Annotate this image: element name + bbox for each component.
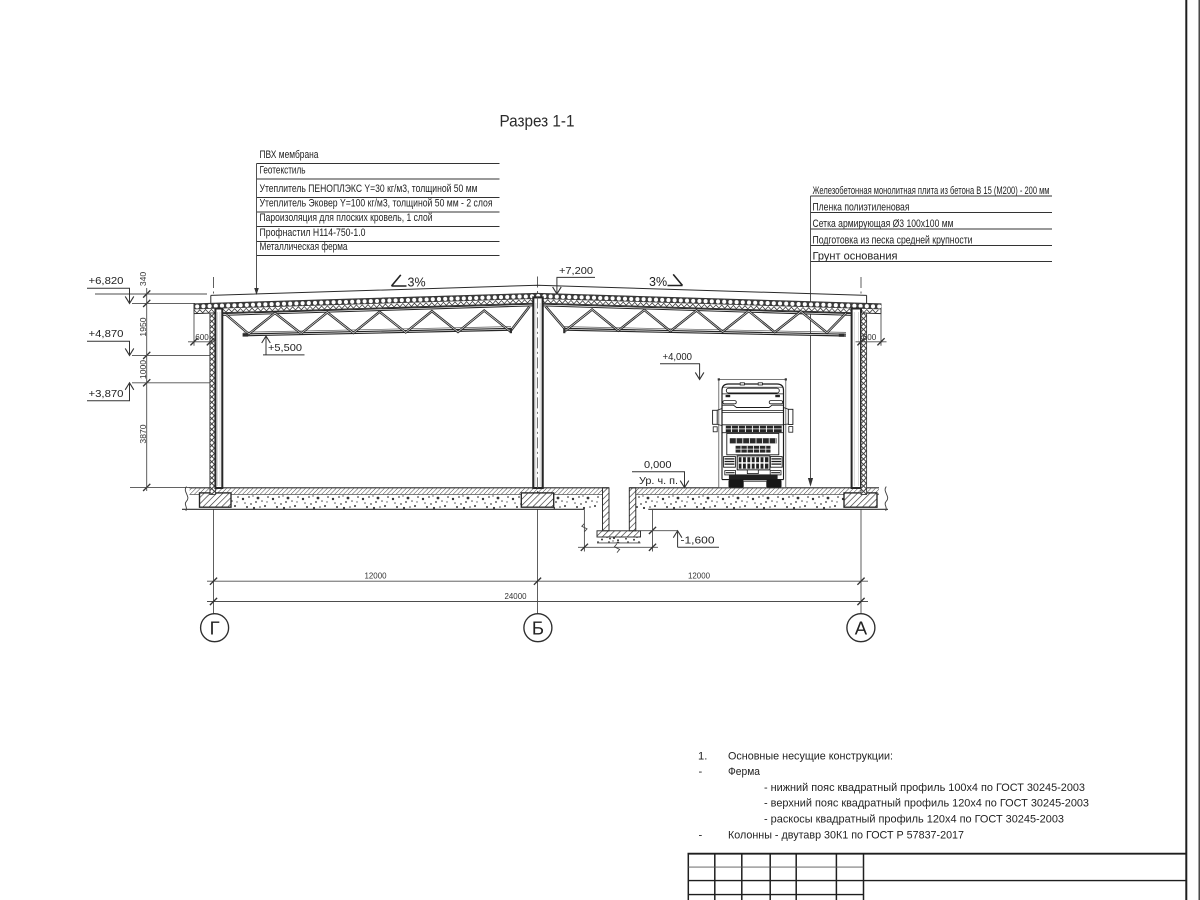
svg-text:+5,500: +5,500	[268, 342, 302, 354]
svg-text:+4,000: +4,000	[663, 351, 693, 363]
svg-text:+3,870: +3,870	[89, 388, 124, 400]
svg-text:Грунт основания: Грунт основания	[813, 250, 898, 262]
svg-text:1000: 1000	[138, 360, 148, 379]
svg-text:Основные несущие конструкции:: Основные несущие конструкции:	[728, 750, 893, 762]
svg-text:Б: Б	[532, 617, 544, 638]
svg-text:-1,600: -1,600	[681, 534, 715, 546]
svg-text:Ферма: Ферма	[728, 766, 761, 778]
svg-text:600: 600	[195, 332, 209, 342]
svg-text:-: -	[699, 829, 703, 841]
svg-text:Колонны - двутавр 30К1 по ГОСТ: Колонны - двутавр 30К1 по ГОСТ Р 57837-2…	[728, 829, 964, 841]
svg-text:1950: 1950	[138, 317, 148, 336]
svg-text:Ур. ч. п.: Ур. ч. п.	[639, 475, 678, 487]
svg-text:12000: 12000	[688, 570, 710, 580]
svg-text:Утеплитель ПЕНОПЛЭКС Y=30 кг/м: Утеплитель ПЕНОПЛЭКС Y=30 кг/м3, толщино…	[260, 183, 478, 195]
svg-text:-: -	[699, 766, 703, 778]
svg-text:3%: 3%	[408, 275, 426, 289]
svg-text:Пароизоляция для плоских крове: Пароизоляция для плоских кровель, 1 слой	[260, 212, 433, 224]
svg-text:Железобетонная монолитная плит: Железобетонная монолитная плита из бетон…	[813, 185, 1050, 197]
svg-text:А: А	[855, 617, 868, 638]
svg-text:Профнастил Н114-750-1.0: Профнастил Н114-750-1.0	[260, 227, 366, 239]
svg-text:Сетка армирующая Ø3 100х100 мм: Сетка армирующая Ø3 100х100 мм	[813, 218, 954, 230]
svg-text:+7,200: +7,200	[559, 265, 593, 277]
svg-text:- раскосы квадратный профиль 1: - раскосы квадратный профиль 120х4 по ГО…	[764, 814, 1064, 826]
svg-text:ПВХ мембрана: ПВХ мембрана	[260, 149, 319, 161]
svg-text:+4,870: +4,870	[89, 328, 124, 340]
svg-text:Металлическая ферма: Металлическая ферма	[260, 241, 348, 253]
svg-text:Г: Г	[210, 617, 220, 638]
svg-text:3870: 3870	[138, 424, 148, 443]
svg-text:Подготовка из песка средней кр: Подготовка из песка средней крупности	[813, 234, 973, 246]
svg-text:12000: 12000	[365, 570, 387, 580]
svg-text:Геотекстиль: Геотекстиль	[260, 164, 306, 176]
svg-text:3%: 3%	[649, 275, 667, 289]
svg-text:Утеплитель Эковер Y=100 кг/м3,: Утеплитель Эковер Y=100 кг/м3, толщиной …	[260, 197, 493, 209]
svg-text:Разрез 1-1: Разрез 1-1	[500, 112, 575, 130]
svg-text:+6,820: +6,820	[89, 275, 124, 287]
svg-text:Пленка полиэтиленовая: Пленка полиэтиленовая	[813, 201, 910, 213]
svg-text:- верхний пояс квадратный проф: - верхний пояс квадратный профиль 120х4 …	[764, 798, 1089, 810]
svg-text:- нижний пояс квадратный профи: - нижний пояс квадратный профиль 100х4 п…	[764, 782, 1085, 794]
svg-text:24000: 24000	[505, 591, 527, 601]
svg-text:600: 600	[863, 332, 877, 342]
svg-text:0,000: 0,000	[644, 459, 672, 471]
svg-text:1.: 1.	[698, 750, 707, 762]
svg-text:340: 340	[138, 272, 148, 287]
